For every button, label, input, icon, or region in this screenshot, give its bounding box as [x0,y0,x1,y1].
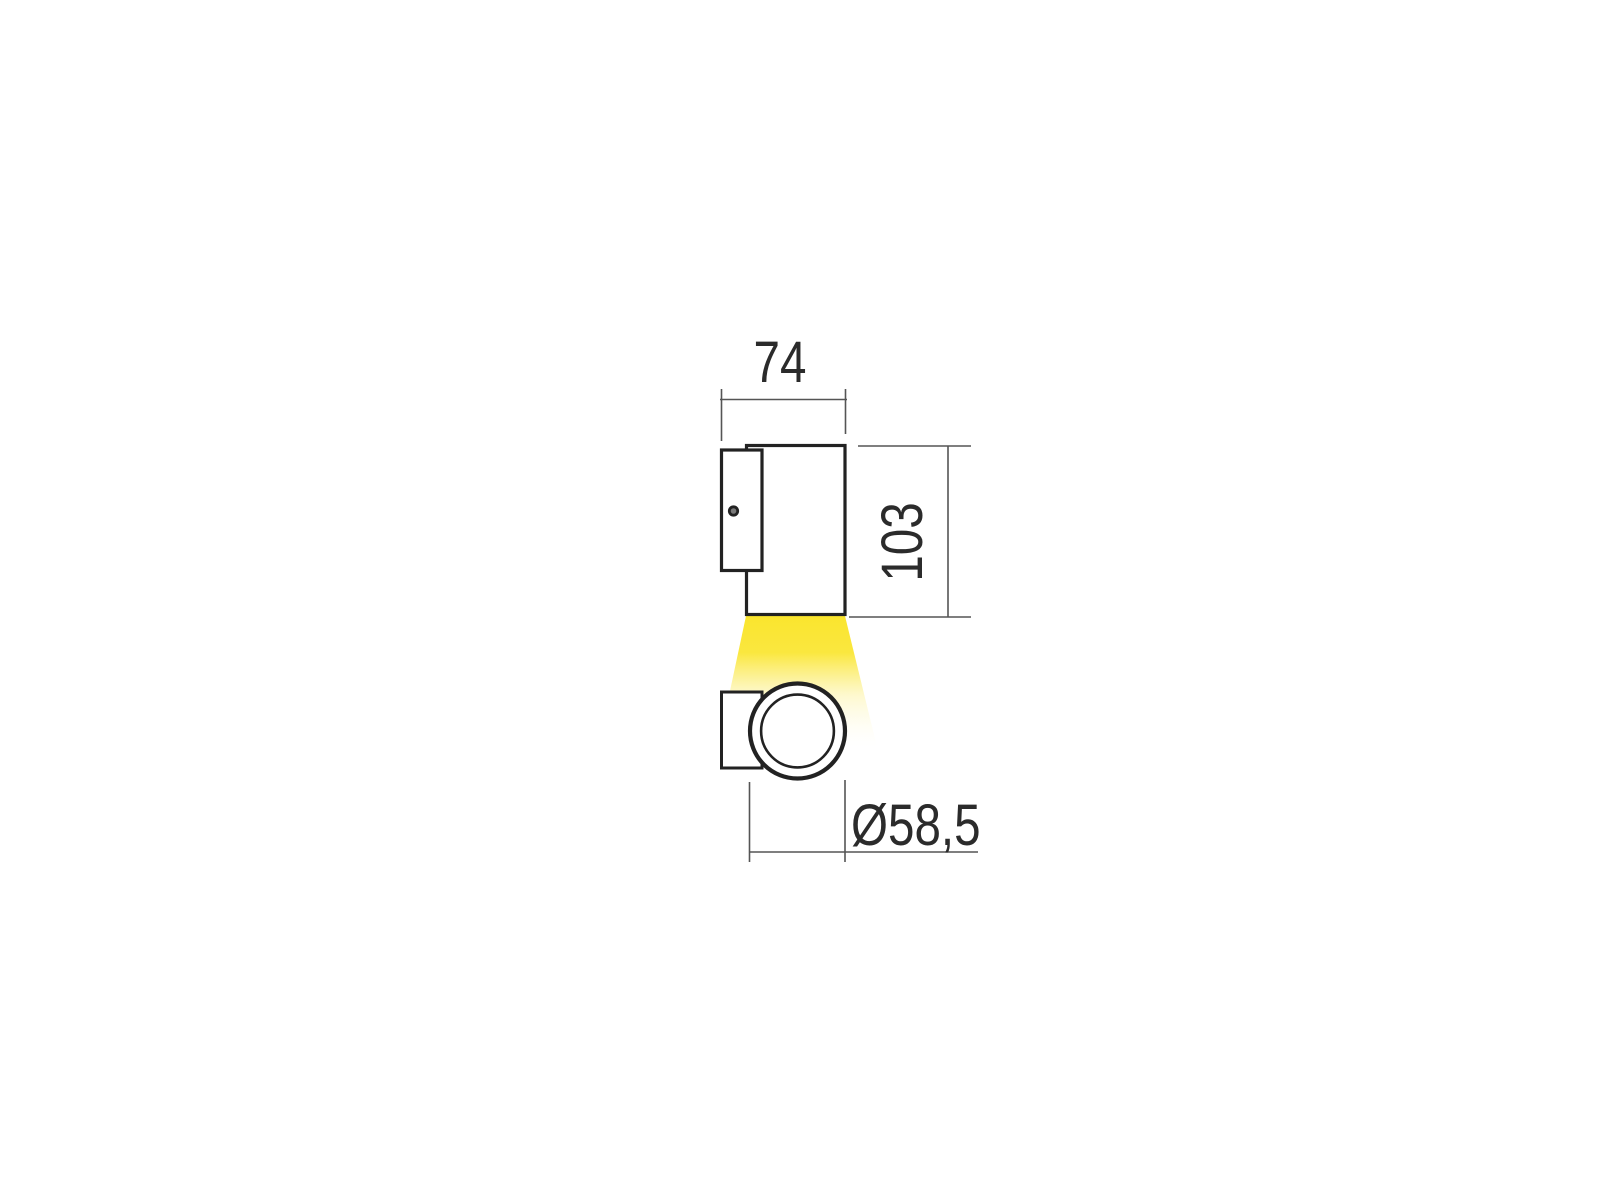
diameter-dimension-label: Ø58,5 [851,797,981,855]
width-dimension [720,389,847,441]
wall-mount-plate-side [722,450,763,571]
mounting-screw-icon [729,507,737,515]
technical-drawing: 74 103 Ø58,5 [0,0,1600,1200]
height-dimension-label: 103 [874,502,932,581]
lamp-outer-circle [750,684,845,779]
side-view [722,446,846,615]
bottom-view [722,684,846,779]
drawing-svg [0,0,1600,1200]
width-dimension-label: 74 [754,334,807,392]
